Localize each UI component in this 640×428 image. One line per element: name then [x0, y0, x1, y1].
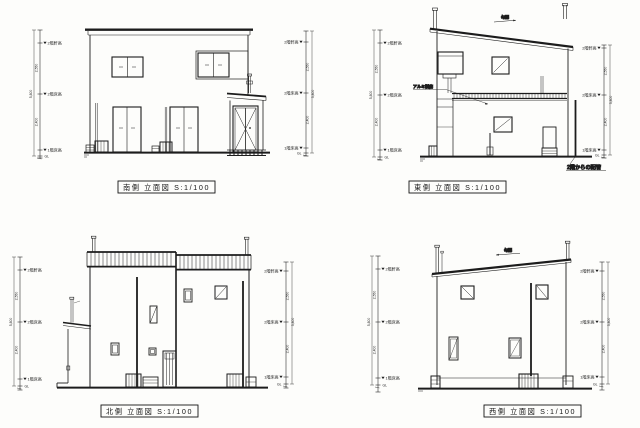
gl-label: GL — [297, 151, 302, 155]
level-marker-triangle — [299, 92, 302, 94]
west-elevation: 勾配 — [418, 241, 592, 391]
level-label: 2階床高 — [580, 319, 594, 325]
total-height-dimension: 5,800 — [311, 90, 315, 99]
downpipe-left — [96, 103, 98, 152]
dimension-ruler: 5,8002階軒高2階床高1階床高GL2,5502,400 — [582, 45, 613, 158]
level-label: 2階床高 — [28, 319, 42, 325]
window-2f-right — [196, 51, 248, 79]
dimension-ruler: 5,8002階軒高2階床高1階床高GL2,5502,400 — [29, 30, 62, 159]
level-label: 2階床高 — [48, 91, 62, 97]
level-marker-triangle — [597, 94, 600, 96]
level-label: 1階床高 — [28, 376, 42, 382]
equipment-boxes — [86, 141, 172, 153]
service-door — [163, 351, 176, 387]
level-marker-triangle — [383, 94, 386, 96]
level-label: 2階軒高 — [580, 268, 594, 274]
entrance-door — [233, 106, 258, 152]
pipe-mid — [487, 133, 493, 155]
dimension-ruler: 5,8002階軒高2階床高1階床高GL2,5502,400 — [367, 256, 400, 392]
window-tall-narrow — [150, 306, 157, 323]
balcony-band — [452, 76, 567, 101]
level-marker-triangle — [23, 378, 26, 380]
level-marker-triangle — [597, 47, 600, 49]
window-1f-center — [509, 338, 521, 358]
level-label: 2階軒高 — [28, 267, 42, 273]
level-label: 1階床高 — [386, 375, 400, 381]
total-height-dimension: 5,800 — [29, 90, 33, 99]
level-marker-triangle — [383, 149, 386, 151]
equipment-boxes — [431, 374, 573, 389]
vent-pipe — [247, 74, 253, 93]
level-label: 1階床高 — [48, 147, 62, 153]
dimension-ruler: 5,8002階軒高2階床高1階床高GL2,5502,400 — [9, 257, 42, 390]
total-height-dimension: 5,800 — [609, 96, 613, 105]
pipe-note: 2階からの配管 — [567, 163, 601, 171]
level-label: 2階軒高 — [386, 266, 400, 272]
level-label: 2階床高 — [582, 92, 596, 98]
slope-mark: 勾配 — [494, 14, 516, 23]
storey-height-dimension: 2,550 — [374, 65, 378, 74]
equipment-box — [429, 146, 437, 156]
caption-north: 北側 立面図 S:1/100 — [101, 405, 198, 417]
storey-height-dimension: 2,550 — [604, 67, 608, 76]
window-2f-left — [112, 57, 143, 77]
gl-label: GL — [593, 382, 598, 386]
level-label: 2階軒高 — [284, 39, 298, 45]
dimension-ruler: 5,8002階軒高2階床高1階床高GL2,5502,400 — [284, 31, 315, 156]
storey-height-dimension: 2,550 — [306, 63, 310, 72]
window-small-right-panel — [184, 289, 192, 302]
storey-height-dimension: 2,550 — [602, 292, 606, 301]
slope-label: 勾配 — [504, 247, 512, 253]
level-marker-triangle — [595, 270, 598, 272]
dimension-ruler: 5,8002階軒高2階床高1階床高GL2,5502,400 — [369, 30, 402, 160]
porch-vent-pipe — [70, 297, 80, 322]
fix-window-2f-left — [461, 286, 474, 299]
storey-height-dimension: 2,400 — [14, 346, 18, 355]
level-marker-triangle — [597, 149, 600, 151]
window-2f-left — [438, 52, 463, 93]
east-elevation: 勾配 — [413, 3, 606, 171]
fix-window-1f — [494, 117, 512, 132]
storey-height-dimension: 2,550 — [34, 64, 38, 73]
storey-height-dimension: 2,400 — [602, 345, 606, 354]
total-height-dimension: 5,800 — [369, 91, 373, 100]
total-height-dimension: 5,800 — [9, 318, 13, 327]
level-marker-triangle — [299, 147, 302, 149]
level-marker-triangle — [595, 321, 598, 323]
patio-door-right — [170, 107, 198, 152]
vent-stack-left — [91, 236, 96, 252]
equipment-boxes — [126, 374, 256, 387]
caption-west: 西側 立面図 S:1/100 — [484, 405, 581, 417]
gl-label: GL — [383, 383, 388, 387]
level-marker-triangle — [23, 321, 26, 323]
storey-height-dimension: 2,400 — [604, 118, 608, 127]
porch-roof — [63, 323, 91, 384]
level-label: 2階床高 — [284, 90, 298, 96]
vent-stack-right — [244, 237, 249, 255]
fix-window-2f — [492, 57, 509, 74]
mono-pitch-roof — [430, 29, 573, 51]
dimension-rulers: 5,8002階軒高2階床高1階床高GL2,5502,4005,8002階軒高2階… — [9, 30, 613, 392]
south-elevation — [84, 30, 270, 157]
level-marker-triangle — [43, 149, 46, 151]
north-elevation — [57, 236, 268, 387]
level-label: 2階床高 — [264, 319, 278, 325]
elevation-sheet-canvas: 勾配 — [0, 0, 640, 428]
level-label: 2階軒高 — [264, 268, 278, 274]
level-label: 1階床高 — [388, 147, 402, 153]
caption-east-label: 東側 立面図 S:1/100 — [414, 183, 501, 192]
parapet-coping-left — [87, 252, 176, 267]
vent-stack-right — [563, 3, 568, 19]
ground-line — [418, 389, 592, 391]
caption-east: 東側 立面図 S:1/100 — [409, 181, 506, 193]
elevation-drawing-sheet: 勾配 — [0, 0, 640, 428]
level-label: 1階床高 — [580, 374, 594, 380]
ground-line — [420, 157, 592, 161]
caption-south-label: 南側 立面図 S:1/100 — [123, 183, 210, 192]
caption-west-label: 西側 立面図 S:1/100 — [489, 407, 576, 416]
storey-height-dimension: 2,400 — [286, 345, 290, 354]
level-marker-triangle — [279, 376, 282, 378]
caption-north-label: 北側 立面図 S:1/100 — [106, 407, 193, 416]
window-1f-left — [449, 337, 458, 360]
level-label: 1階床高 — [284, 145, 298, 151]
service-chase — [542, 127, 557, 156]
level-marker-triangle — [381, 268, 384, 270]
level-marker-triangle — [381, 377, 384, 379]
gl-label: GL — [595, 153, 600, 157]
vent-stack-left — [433, 8, 438, 29]
total-height-dimension: 5,800 — [367, 318, 371, 327]
storey-height-dimension: 2,400 — [34, 118, 38, 127]
slope-mark: 勾配 — [496, 247, 520, 256]
level-label: 1階床高 — [582, 147, 596, 153]
level-marker-triangle — [279, 321, 282, 323]
roof-parapet — [85, 30, 253, 35]
level-label: 2階軒高 — [388, 40, 402, 46]
vent-stack-left — [435, 245, 444, 274]
total-height-dimension: 5,800 — [607, 318, 611, 327]
caption-south: 南側 立面図 S:1/100 — [118, 181, 215, 193]
fix-window-2f-right — [536, 285, 548, 299]
exterior-pipe: 2階からの配管 — [566, 100, 606, 171]
wall-outline — [437, 262, 566, 385]
level-marker-triangle — [383, 42, 386, 44]
fix-window-right-panel — [215, 286, 227, 299]
gl-label: GL — [277, 382, 282, 386]
gl-label: GL — [25, 384, 30, 388]
level-marker-triangle — [43, 93, 46, 95]
level-label: 1階床高 — [264, 374, 278, 380]
level-marker-triangle — [43, 42, 46, 44]
level-marker-triangle — [595, 376, 598, 378]
storey-height-dimension: 2,550 — [372, 291, 376, 300]
level-label: 2階軒高 — [48, 40, 62, 46]
level-marker-triangle — [279, 270, 282, 272]
captions: 南側 立面図 S:1/100 東側 立面図 S:1/100 北側 立面図 S:1… — [101, 181, 581, 417]
storey-height-dimension: 2,400 — [374, 118, 378, 127]
canopy-label: アルミ製庇 — [413, 83, 433, 89]
window-1f-small — [111, 343, 119, 355]
slope-label: 勾配 — [501, 14, 509, 20]
dimension-ruler: 5,8002階軒高2階床高1階床高GL2,5502,400 — [264, 262, 295, 388]
parapet-coping-right — [176, 255, 251, 270]
level-label: 2階軒高 — [582, 45, 596, 51]
level-marker-triangle — [299, 41, 302, 43]
dimension-ruler: 5,8002階軒高2階床高1階床高GL2,5502,400 — [580, 262, 611, 390]
storey-height-dimension: 2,550 — [14, 292, 18, 301]
mono-pitch-roof — [432, 260, 571, 278]
patio-door-left — [113, 107, 141, 152]
window-1f-tiny — [149, 348, 156, 355]
level-label: 2階床高 — [388, 92, 402, 98]
storey-height-dimension: 2,550 — [286, 292, 290, 301]
gl-label: GL — [45, 154, 50, 158]
storey-height-dimension: 2,400 — [306, 116, 310, 125]
level-label: 2階床高 — [386, 319, 400, 325]
vent-stack-right — [565, 241, 570, 259]
gl-label: GL — [385, 155, 390, 159]
total-height-dimension: 5,800 — [291, 318, 295, 327]
level-marker-triangle — [23, 269, 26, 271]
level-marker-triangle — [381, 321, 384, 323]
storey-height-dimension: 2,400 — [372, 346, 376, 355]
